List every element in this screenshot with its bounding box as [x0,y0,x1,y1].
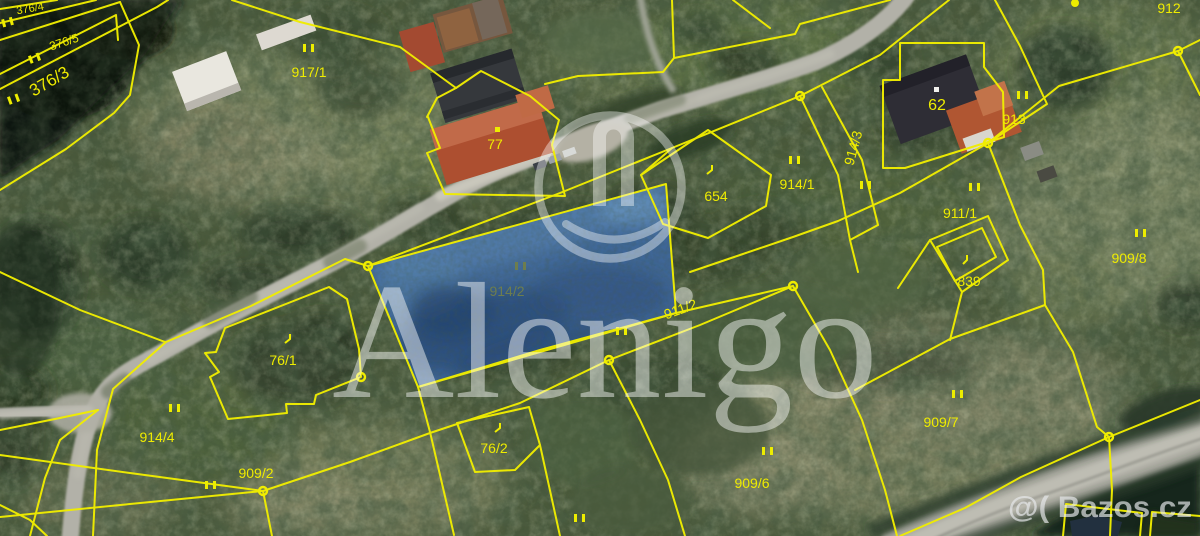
svg-text:@( Bazos.cz: @( Bazos.cz [1008,491,1192,524]
svg-text:Alenigo: Alenigo [332,249,878,433]
svg-text:909/2: 909/2 [238,465,273,481]
svg-text:839: 839 [957,273,981,289]
svg-text:654: 654 [704,188,728,204]
svg-text:76/2: 76/2 [480,440,507,456]
svg-text:911/1: 911/1 [943,205,977,221]
svg-text:76/1: 76/1 [269,352,296,368]
svg-text:77: 77 [487,136,503,152]
svg-text:909/8: 909/8 [1111,250,1146,266]
svg-text:62: 62 [928,97,946,114]
svg-text:913: 913 [1002,111,1026,127]
svg-text:914/1: 914/1 [779,176,814,192]
svg-text:912: 912 [1157,0,1181,16]
svg-text:909/6: 909/6 [734,475,769,491]
svg-text:917/1: 917/1 [291,64,326,80]
svg-text:914/4: 914/4 [139,429,174,445]
svg-text:909/7: 909/7 [923,414,958,430]
